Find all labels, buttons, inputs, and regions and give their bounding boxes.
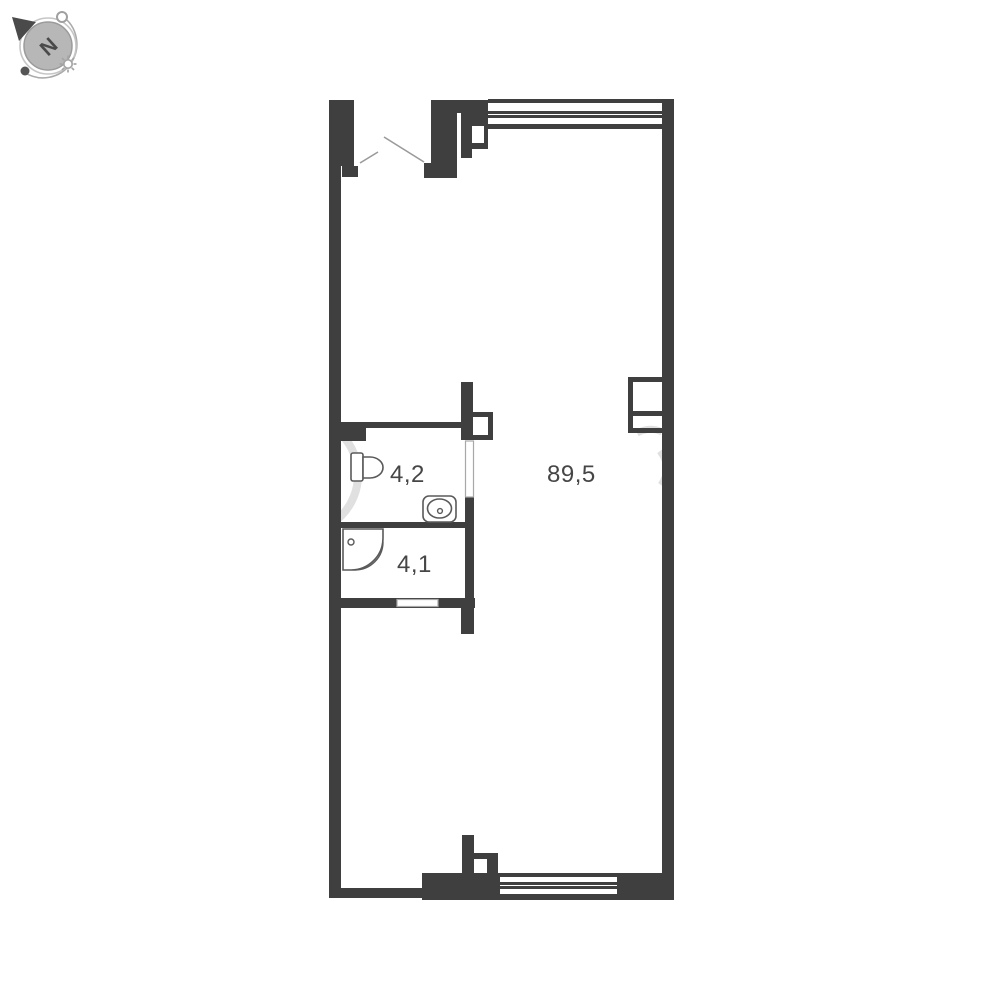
wc-room-area-label: 4,2: [390, 463, 425, 487]
sink: [423, 496, 456, 522]
shower-room-door-opening: [397, 600, 438, 607]
wc-door-opening: [466, 441, 474, 497]
floor-plan-page: N: [0, 0, 1000, 1000]
bottom-window: [500, 873, 617, 900]
duct-shaft: [628, 377, 662, 433]
entrance-door-swing: [360, 137, 424, 163]
shower-tray: [343, 529, 383, 570]
main-room-area-label: 89,5: [547, 463, 596, 487]
floor-plan-drawing: [0, 0, 1000, 1000]
shower-room-area-label: 4,1: [397, 553, 432, 577]
walls: [329, 99, 674, 900]
toilet: [351, 453, 383, 481]
top-window: [488, 99, 662, 129]
